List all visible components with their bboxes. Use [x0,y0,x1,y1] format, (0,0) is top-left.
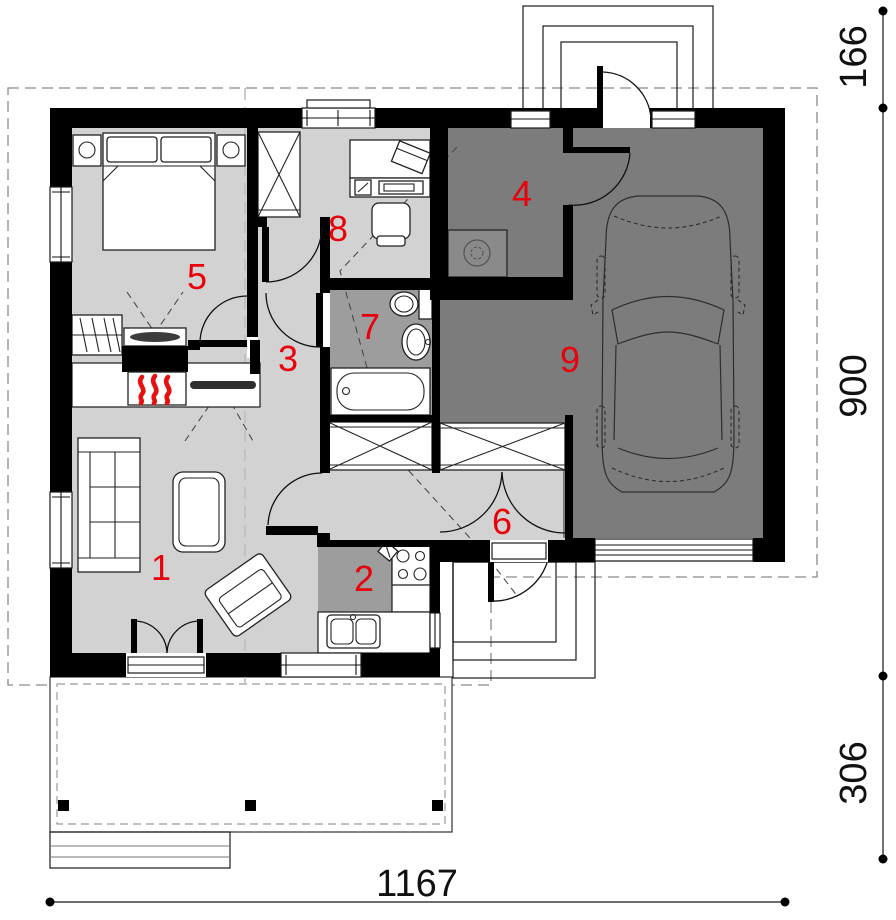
room-label-9: 9 [560,339,580,380]
office-chair [372,203,410,239]
back-door-leaf [488,562,494,602]
sofa [78,438,140,572]
room-label-4: 4 [512,173,532,214]
closet-right [440,423,565,470]
window-kitchen-side [430,613,440,648]
nightstand-left [73,135,101,166]
room-label-3: 3 [278,338,298,379]
entrance-door-leaf [597,66,603,128]
tv [190,381,256,389]
utility-door-leaf [563,147,630,153]
room-label-1: 1 [151,547,171,588]
office-door-leaf [262,227,269,282]
dim-900: 900 [833,354,875,417]
nightstand-right [217,135,245,166]
room-label-6: 6 [492,501,512,542]
room-label-7: 7 [360,306,380,347]
wardrobe-office [258,132,300,217]
window-office-top [302,100,375,128]
back-door-swing [491,563,547,601]
stove [392,544,430,585]
closet-left [328,422,432,470]
dim-306: 306 [833,741,875,804]
dimension-bottom: 1167 [46,863,790,907]
terrace-post [432,800,443,811]
entrance-porch-steps [523,6,713,110]
chimney [122,346,188,372]
french-door-leaf [131,619,137,653]
window-bedroom-left [50,187,72,262]
french-door-leaf [197,619,203,653]
room-6-hall-floor [320,470,573,540]
room-label-5: 5 [187,256,207,297]
living-door-leaf [266,526,318,535]
terrace [50,677,452,868]
keyboard [379,181,423,194]
window-entry-left [511,111,550,128]
bathtub [331,368,430,415]
terrace-step [50,832,230,868]
hall-closets [328,422,565,470]
terrace-post [245,800,256,811]
pillow [161,137,211,162]
floor-plan-page: 1 2 3 4 5 6 7 8 9 166 900 306 1167 [0,0,896,920]
pillow [107,137,157,162]
bathroom-door-leaf [316,293,323,347]
dim-1167: 1167 [376,863,458,905]
window-entry-right [652,111,695,128]
back-entry-steps [453,562,595,678]
window-kitchen-bottom [281,653,361,677]
kitchen-sink [327,615,380,649]
room-label-8: 8 [328,208,348,249]
coffee-table [173,472,225,552]
dimension-right: 166 900 306 [833,7,888,864]
bedroom-door-leaf [200,340,247,347]
terrace-post [58,800,69,811]
washing-machine [448,230,507,277]
dresser-hatched [72,315,122,355]
garage-door [595,539,753,561]
dim-166: 166 [833,25,875,88]
floor-plan-canvas: 1 2 3 4 5 6 7 8 9 166 900 306 1167 [0,0,896,920]
window-living-left [50,492,72,568]
room-label-2: 2 [354,558,374,599]
